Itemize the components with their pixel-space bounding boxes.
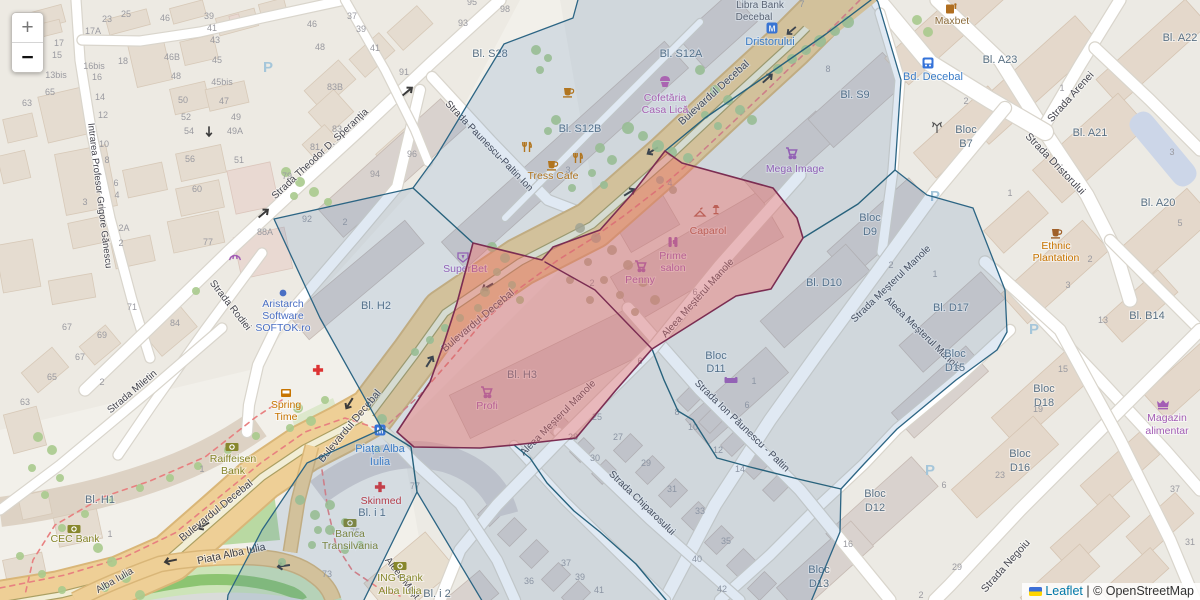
svg-text:37: 37 <box>347 11 357 21</box>
svg-text:16: 16 <box>92 72 102 82</box>
svg-text:54: 54 <box>184 126 194 136</box>
svg-text:69: 69 <box>97 330 107 340</box>
svg-text:2: 2 <box>99 377 104 387</box>
svg-text:Bloc: Bloc <box>1033 383 1055 395</box>
svg-text:Bloc: Bloc <box>955 124 977 136</box>
svg-text:19: 19 <box>1033 404 1043 414</box>
svg-text:15: 15 <box>1058 364 1068 374</box>
svg-text:95: 95 <box>467 0 477 7</box>
svg-text:83B: 83B <box>327 82 343 92</box>
svg-text:8: 8 <box>104 155 109 165</box>
svg-text:1: 1 <box>199 464 204 474</box>
svg-text:39: 39 <box>356 24 366 34</box>
svg-text:91: 91 <box>399 67 409 77</box>
svg-text:P: P <box>1029 321 1039 338</box>
svg-text:81: 81 <box>310 142 320 152</box>
svg-text:65: 65 <box>45 87 55 97</box>
svg-text:25: 25 <box>121 9 131 19</box>
svg-text:Bd. Decebal: Bd. Decebal <box>903 71 963 83</box>
svg-text:1: 1 <box>1007 188 1012 198</box>
svg-text:2A: 2A <box>118 223 129 233</box>
svg-text:50: 50 <box>178 95 188 105</box>
svg-text:Alba Iulia: Alba Iulia <box>378 585 421 597</box>
svg-text:46: 46 <box>307 19 317 29</box>
svg-text:Bloc: Bloc <box>864 488 886 500</box>
svg-text:39: 39 <box>204 11 214 21</box>
svg-text:Bl. A20: Bl. A20 <box>1141 197 1176 209</box>
svg-text:31: 31 <box>1185 537 1195 547</box>
svg-text:ING Bank: ING Bank <box>377 572 423 584</box>
svg-text:49A: 49A <box>227 126 243 136</box>
svg-text:Bl. A22: Bl. A22 <box>1163 32 1198 44</box>
svg-text:77: 77 <box>203 237 213 247</box>
svg-text:60: 60 <box>192 184 202 194</box>
svg-text:45: 45 <box>212 55 222 65</box>
svg-text:94: 94 <box>370 169 380 179</box>
svg-text:2: 2 <box>918 590 923 600</box>
svg-text:41: 41 <box>370 43 380 53</box>
svg-text:Time: Time <box>275 411 298 423</box>
svg-text:45bis: 45bis <box>211 77 233 87</box>
svg-text:SOFTOK.ro: SOFTOK.ro <box>255 322 310 334</box>
svg-text:41: 41 <box>207 23 217 33</box>
svg-text:83: 83 <box>332 124 342 134</box>
svg-text:51: 51 <box>234 155 244 165</box>
svg-text:17A: 17A <box>85 26 101 36</box>
svg-text:Raiffeisen: Raiffeisen <box>210 453 257 465</box>
svg-text:2: 2 <box>1087 254 1092 264</box>
svg-text:84: 84 <box>170 318 180 328</box>
svg-text:D16: D16 <box>1010 462 1030 474</box>
svg-text:3: 3 <box>82 197 87 207</box>
svg-text:alimentar: alimentar <box>1145 425 1189 437</box>
svg-text:Ethnic: Ethnic <box>1041 240 1070 252</box>
svg-text:1: 1 <box>1059 83 1064 93</box>
svg-text:Spring: Spring <box>271 399 302 411</box>
svg-text:71: 71 <box>127 302 137 312</box>
svg-text:Plantation: Plantation <box>1033 252 1080 264</box>
svg-text:Maxbet: Maxbet <box>935 15 970 27</box>
svg-text:79: 79 <box>282 171 292 181</box>
svg-text:Bl. A23: Bl. A23 <box>983 54 1018 66</box>
svg-text:P: P <box>925 462 935 479</box>
svg-text:48: 48 <box>171 71 181 81</box>
svg-text:2: 2 <box>118 238 123 248</box>
svg-text:96: 96 <box>407 149 417 159</box>
svg-text:98: 98 <box>500 4 510 14</box>
svg-text:67: 67 <box>75 352 85 362</box>
svg-text:10: 10 <box>99 139 109 149</box>
svg-text:P: P <box>263 59 273 76</box>
svg-text:23: 23 <box>995 470 1005 480</box>
svg-text:D12: D12 <box>865 502 885 514</box>
svg-text:1: 1 <box>107 529 112 539</box>
svg-text:52: 52 <box>181 112 191 122</box>
svg-text:15: 15 <box>52 50 62 60</box>
svg-text:CEC Bank: CEC Bank <box>50 533 100 545</box>
svg-text:3: 3 <box>1169 147 1174 157</box>
svg-text:16: 16 <box>843 539 853 549</box>
svg-text:2: 2 <box>963 96 968 106</box>
svg-text:63: 63 <box>20 397 30 407</box>
svg-text:18: 18 <box>118 56 128 66</box>
svg-text:17: 17 <box>54 38 64 48</box>
svg-text:B7: B7 <box>959 138 972 150</box>
svg-text:49: 49 <box>231 112 241 122</box>
svg-text:Bank: Bank <box>221 465 246 477</box>
svg-text:Bloc: Bloc <box>1009 448 1031 460</box>
svg-text:6: 6 <box>941 480 946 490</box>
svg-text:67: 67 <box>62 322 72 332</box>
svg-text:56: 56 <box>185 154 195 164</box>
svg-text:Bl. H1: Bl. H1 <box>85 494 115 506</box>
svg-text:63: 63 <box>22 98 32 108</box>
svg-text:Aristarch: Aristarch <box>262 298 304 310</box>
svg-text:23: 23 <box>102 14 112 24</box>
svg-text:Magazin: Magazin <box>1147 412 1187 424</box>
svg-text:Bl. A21: Bl. A21 <box>1073 127 1108 139</box>
svg-text:46: 46 <box>160 13 170 23</box>
svg-text:4: 4 <box>114 190 119 200</box>
svg-text:93: 93 <box>458 18 468 28</box>
svg-text:43: 43 <box>210 35 220 45</box>
svg-text:29: 29 <box>952 562 962 572</box>
svg-text:3: 3 <box>1065 280 1070 290</box>
svg-text:5: 5 <box>1177 218 1182 228</box>
svg-text:12: 12 <box>98 110 108 120</box>
svg-text:48: 48 <box>315 42 325 52</box>
svg-text:14: 14 <box>95 92 105 102</box>
svg-text:65: 65 <box>47 372 57 382</box>
svg-text:13bis: 13bis <box>45 70 67 80</box>
svg-text:88A: 88A <box>257 227 273 237</box>
svg-text:47: 47 <box>219 96 229 106</box>
svg-text:16bis: 16bis <box>83 61 105 71</box>
svg-text:Software: Software <box>262 310 304 322</box>
svg-text:46B: 46B <box>164 52 180 62</box>
svg-text:Bl. i 2: Bl. i 2 <box>423 588 451 600</box>
svg-text:6: 6 <box>113 178 118 188</box>
svg-text:Bl. B14: Bl. B14 <box>1129 310 1164 322</box>
svg-text:37: 37 <box>1170 484 1180 494</box>
svg-text:13: 13 <box>1098 315 1108 325</box>
